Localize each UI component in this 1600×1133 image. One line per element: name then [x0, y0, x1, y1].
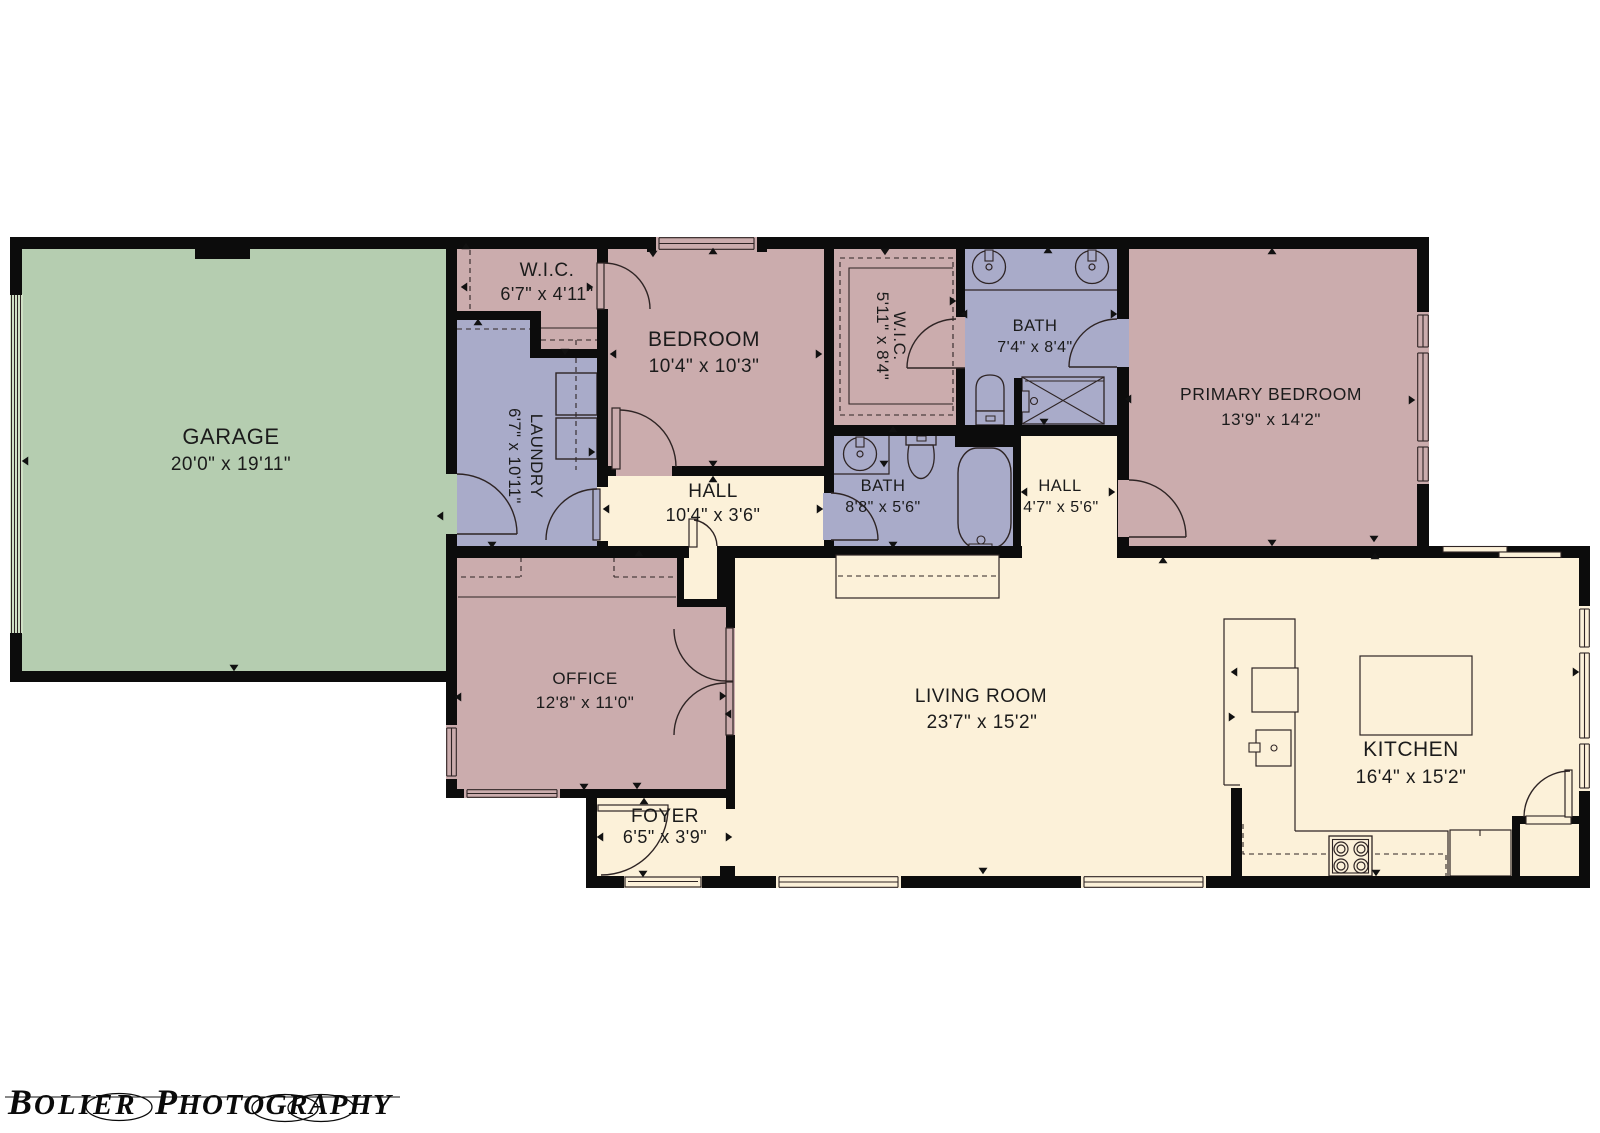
svg-text:GARAGE: GARAGE [182, 424, 279, 449]
svg-text:LAUNDRY: LAUNDRY [527, 414, 546, 498]
svg-text:HALL: HALL [688, 481, 738, 502]
svg-text:B: B [7, 1082, 34, 1122]
svg-text:4'7" x 5'6": 4'7" x 5'6" [1023, 499, 1098, 516]
svg-text:8'8" x 5'6": 8'8" x 5'6" [845, 499, 920, 516]
svg-text:23'7" x 15'2": 23'7" x 15'2" [927, 712, 1038, 733]
svg-text:P: P [154, 1082, 178, 1122]
svg-text:PRIMARY BEDROOM: PRIMARY BEDROOM [1180, 384, 1362, 404]
svg-text:W.I.C.: W.I.C. [520, 260, 575, 281]
svg-text:6'5" x 3'9": 6'5" x 3'9" [623, 827, 707, 847]
svg-text:10'4" x 10'3": 10'4" x 10'3" [649, 356, 760, 377]
svg-text:BATH: BATH [861, 477, 906, 495]
svg-text:LIVING ROOM: LIVING ROOM [915, 686, 1047, 707]
svg-text:6'7" x 4'11": 6'7" x 4'11" [500, 284, 593, 304]
svg-text:10'4" x 3'6": 10'4" x 3'6" [666, 505, 761, 525]
svg-text:12'8" x 11'0": 12'8" x 11'0" [536, 693, 634, 712]
svg-text:13'9" x 14'2": 13'9" x 14'2" [1221, 410, 1321, 429]
svg-text:16'4" x 15'2": 16'4" x 15'2" [1356, 767, 1467, 788]
svg-text:BATH: BATH [1013, 317, 1058, 335]
svg-text:7'4" x 8'4": 7'4" x 8'4" [997, 339, 1072, 356]
svg-text:OFFICE: OFFICE [552, 669, 617, 688]
svg-text:HOTOGRAPHY: HOTOGRAPHY [177, 1089, 393, 1121]
svg-text:20'0" x 19'11": 20'0" x 19'11" [171, 454, 291, 475]
svg-text:5'11" x 8'4": 5'11" x 8'4" [873, 292, 892, 381]
svg-text:FOYER: FOYER [631, 806, 699, 827]
svg-text:HALL: HALL [1038, 477, 1081, 495]
svg-text:BEDROOM: BEDROOM [648, 328, 760, 351]
svg-text:6'7" x 10'11": 6'7" x 10'11" [505, 408, 523, 504]
svg-text:KITCHEN: KITCHEN [1363, 738, 1459, 761]
